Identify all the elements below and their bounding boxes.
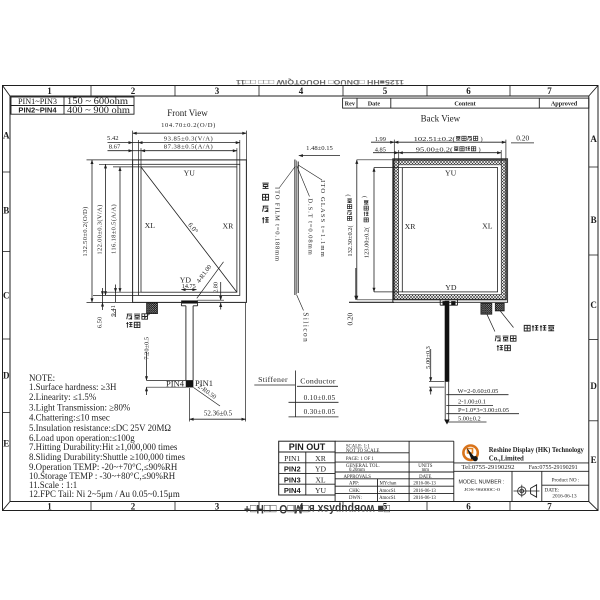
- svg-text:Approved: Approved: [551, 101, 578, 108]
- svg-text:14.75: 14.75: [182, 283, 196, 290]
- svg-text:NOT TO SCALE: NOT TO SCALE: [346, 449, 380, 454]
- svg-text:E: E: [3, 439, 9, 449]
- svg-text:6.50: 6.50: [96, 316, 103, 328]
- svg-text:Front View: Front View: [167, 108, 208, 118]
- svg-text:MYchan: MYchan: [380, 481, 397, 486]
- svg-text:2016-06-13: 2016-06-13: [413, 481, 436, 486]
- svg-text:Tel:0755-29190292: Tel:0755-29190292: [462, 465, 515, 471]
- svg-text:JOS-96000C-0: JOS-96000C-0: [464, 487, 501, 492]
- svg-text:8.Sliding Durability:Shuttle ≥: 8.Sliding Durability:Shuttle ≥100,000 ti…: [29, 452, 186, 462]
- svg-text:XR: XR: [222, 222, 234, 231]
- svg-text:0.20: 0.20: [347, 313, 355, 326]
- svg-text:C: C: [3, 291, 10, 301]
- svg-text:Fax:0755-29190291: Fax:0755-29190291: [529, 465, 578, 471]
- svg-text:XL: XL: [145, 221, 156, 230]
- svg-text:5: 5: [383, 86, 388, 96]
- svg-text:132.50±0.2(O/D): 132.50±0.2(O/D): [82, 206, 89, 256]
- svg-text:0.20mm: 0.20mm: [349, 468, 365, 473]
- svg-text:1: 1: [47, 502, 52, 512]
- svg-text:Product NO :: Product NO :: [552, 478, 580, 484]
- svg-text:3: 3: [215, 86, 220, 96]
- svg-text:PIN1~PIN3: PIN1~PIN3: [18, 97, 57, 106]
- svg-text:123.00±0.2(: 123.00±0.2(: [363, 227, 370, 258]
- svg-text:APP:: APP:: [349, 481, 359, 486]
- svg-text:7.Hitting Durability:Hit ≥1,00: 7.Hitting Durability:Hit ≥1,000,000 time…: [29, 442, 178, 452]
- svg-text:Date: Date: [368, 101, 381, 108]
- svg-text:2: 2: [131, 86, 136, 96]
- svg-text:Co.,Limited: Co.,Limited: [489, 453, 525, 462]
- svg-text:AmocS1: AmocS1: [379, 489, 396, 494]
- svg-text:XL: XL: [315, 475, 326, 484]
- svg-text:1: 1: [47, 86, 52, 96]
- svg-text:PAGE: 1 OF 1: PAGE: 1 OF 1: [346, 457, 375, 462]
- svg-text:87.38±0.5(A/A): 87.38±0.5(A/A): [164, 144, 213, 151]
- svg-text:8.67: 8.67: [109, 143, 121, 150]
- svg-text:PIN4: PIN4: [284, 486, 302, 495]
- svg-text:PIN2~PIN4: PIN2~PIN4: [18, 106, 57, 115]
- svg-text:5.Insulation resistance:≤DC 25: 5.Insulation resistance:≤DC 25V 20MΩ: [29, 423, 171, 433]
- svg-text:0.30±0.05: 0.30±0.05: [304, 408, 336, 416]
- svg-text:YD: YD: [315, 465, 327, 474]
- svg-text:3.Light Transmission: ≥80%: 3.Light Transmission: ≥80%: [29, 402, 131, 412]
- svg-text:XR: XR: [405, 222, 417, 231]
- svg-text:): ): [479, 146, 481, 153]
- svg-text:2-1.00±0.1: 2-1.00±0.1: [458, 398, 486, 405]
- svg-text:2016-06-13: 2016-06-13: [413, 496, 436, 501]
- svg-text:PIN1: PIN1: [284, 454, 300, 463]
- svg-text:2.80: 2.80: [213, 282, 220, 293]
- svg-text:YU: YU: [445, 169, 457, 178]
- svg-text:XL: XL: [482, 222, 493, 231]
- svg-text:DATE: DATE: [419, 475, 431, 480]
- svg-text:12.FPC Tail: Ni 2~5μm / Au 0.0: 12.FPC Tail: Ni 2~5μm / Au 0.05~0.15μm: [29, 489, 180, 499]
- svg-text:D: D: [3, 371, 10, 381]
- svg-text:6: 6: [466, 502, 471, 512]
- svg-text:A: A: [590, 134, 597, 144]
- svg-text:2016-06-13: 2016-06-13: [413, 489, 436, 494]
- svg-text:XR: XR: [315, 454, 327, 463]
- svg-text:CHK:: CHK:: [349, 489, 360, 494]
- svg-text:ITO FILM t=0.188mm: ITO FILM t=0.188mm: [274, 187, 281, 262]
- svg-text:□■ woʁpupʎsx ʁ□M□O □□H□+: □■ woʁpupʎsx ʁ□M□O □□H□+: [244, 502, 390, 516]
- svg-text:2016-06-13: 2016-06-13: [552, 493, 577, 499]
- svg-text:P=1.0*3=3.00±0.05: P=1.0*3=3.00±0.05: [458, 407, 509, 414]
- svg-text:Content: Content: [454, 101, 476, 108]
- svg-text:YU: YU: [315, 486, 327, 495]
- svg-text:Stiffener: Stiffener: [258, 375, 288, 384]
- svg-text:E: E: [591, 455, 597, 465]
- svg-text:mm: mm: [422, 468, 430, 473]
- svg-text:C: C: [590, 300, 597, 310]
- svg-text:1.48±0.15: 1.48±0.15: [306, 145, 333, 152]
- svg-text:): ): [344, 194, 351, 196]
- svg-text:B: B: [3, 206, 9, 216]
- svg-text:2.Linearity: ≤1.5%: 2.Linearity: ≤1.5%: [29, 392, 97, 402]
- svg-text:1125■HH □DNUO□ HOUOTQIW □□□ □□: 1125■HH □DNUO□ HOUOTQIW □□□ □□11: [235, 78, 404, 85]
- svg-text:1.Surface hardness: ≥3H: 1.Surface hardness: ≥3H: [29, 382, 117, 392]
- svg-text:YD: YD: [445, 283, 457, 292]
- svg-text:MODEL NUMBER :: MODEL NUMBER :: [459, 480, 505, 486]
- svg-text:3: 3: [215, 502, 220, 512]
- svg-text:D: D: [590, 381, 597, 391]
- svg-text:95.00±0.2(: 95.00±0.2(: [416, 146, 453, 153]
- svg-text:122.00±0.3(V/A): 122.00±0.3(V/A): [97, 204, 104, 254]
- svg-text:PIN3: PIN3: [284, 475, 301, 484]
- svg-text:APPROVALS: APPROVALS: [344, 475, 372, 480]
- svg-text:A: A: [3, 131, 10, 141]
- svg-text:400 ~ 900 ohm: 400 ~ 900 ohm: [67, 105, 130, 115]
- svg-text:0.10±0.05: 0.10±0.05: [304, 394, 336, 402]
- svg-text:Silicon: Silicon: [302, 312, 310, 343]
- svg-text:104.70±0.2(O/D): 104.70±0.2(O/D): [161, 122, 216, 129]
- svg-text:4: 4: [299, 86, 304, 96]
- svg-text:4.85: 4.85: [375, 146, 386, 153]
- svg-text:7: 7: [547, 502, 552, 512]
- svg-text:AmocS1: AmocS1: [379, 496, 396, 501]
- svg-text:4.Chattering:≤10 msec: 4.Chattering:≤10 msec: [29, 412, 110, 422]
- svg-text:DWN:: DWN:: [349, 496, 362, 501]
- svg-text:102.51±0.2(: 102.51±0.2(: [414, 136, 456, 143]
- svg-text:): ): [361, 196, 368, 198]
- svg-text:2: 2: [131, 502, 136, 512]
- svg-text:93.85±0.3(V/A): 93.85±0.3(V/A): [164, 136, 213, 143]
- svg-text:7: 7: [547, 86, 552, 96]
- svg-text:132.30±0.2(: 132.30±0.2(: [347, 225, 354, 256]
- svg-text:B: B: [591, 215, 597, 225]
- svg-text:YU: YU: [184, 169, 196, 178]
- svg-text:5.42: 5.42: [107, 135, 119, 142]
- svg-text:116.18±0.5(A/A): 116.18±0.5(A/A): [111, 204, 118, 254]
- svg-text:D.S.T t=0.08mm: D.S.T t=0.08mm: [307, 198, 314, 255]
- svg-text:PIN2: PIN2: [284, 465, 301, 474]
- svg-text:): ): [481, 136, 483, 143]
- svg-text:5.00±0.2: 5.00±0.2: [458, 415, 481, 422]
- svg-text:Rev: Rev: [345, 101, 356, 108]
- svg-text:PIN OUT: PIN OUT: [289, 442, 326, 452]
- svg-text:0.20: 0.20: [516, 133, 529, 142]
- svg-text:W=2-0.60±0.05: W=2-0.60±0.05: [458, 388, 499, 395]
- svg-text:Back View: Back View: [421, 113, 461, 123]
- svg-text:52.36±0.5: 52.36±0.5: [204, 410, 233, 418]
- svg-text:Conductor: Conductor: [300, 376, 336, 385]
- svg-text:1.99: 1.99: [375, 136, 386, 143]
- svg-text:6: 6: [466, 86, 471, 96]
- svg-text:ITO GLASS t=1.1mm: ITO GLASS t=1.1mm: [319, 180, 326, 258]
